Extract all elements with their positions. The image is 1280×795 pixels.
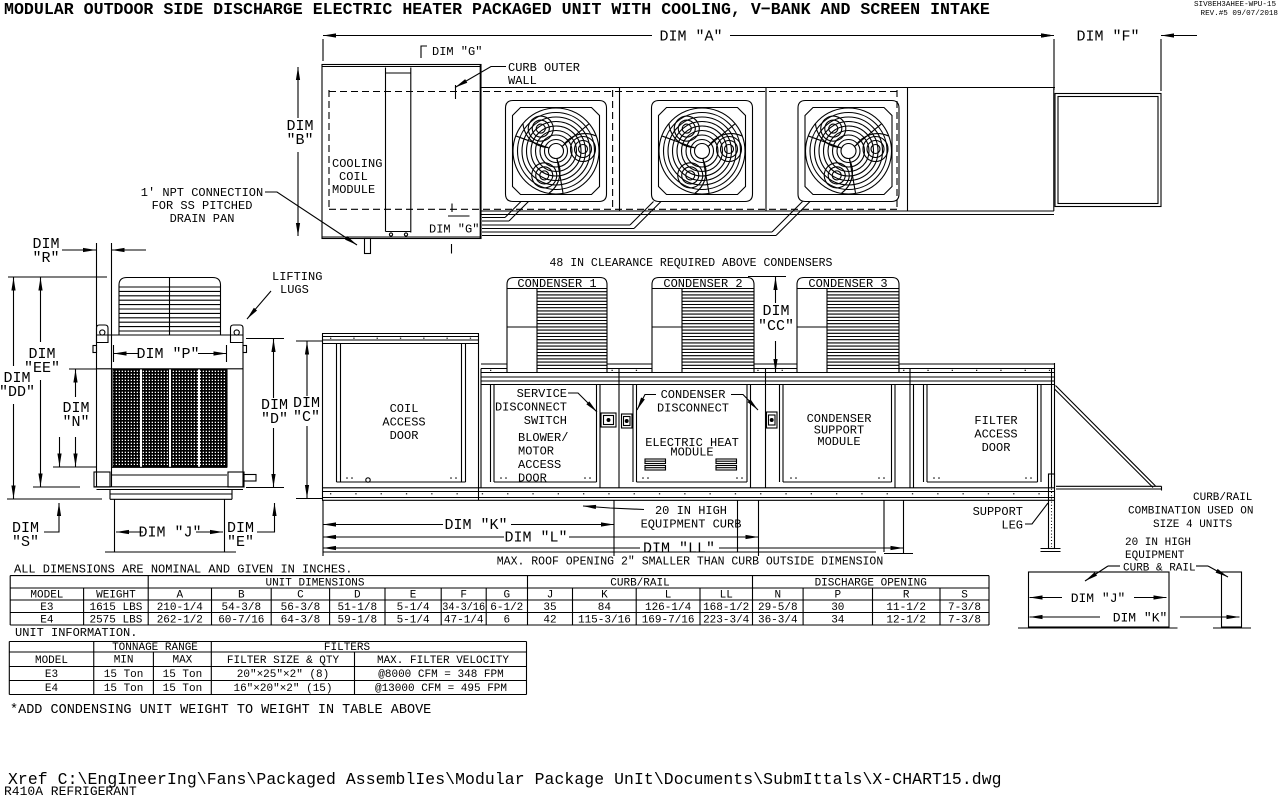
svg-text:169-7/16: 169-7/16 [642, 615, 695, 627]
svg-text:DOOR: DOOR [390, 429, 419, 443]
svg-text:DIM ″P″: DIM ″P″ [136, 346, 199, 363]
svg-text:L: L [665, 590, 672, 602]
svg-text:223-3/4: 223-3/4 [703, 615, 750, 627]
svg-text:15 Ton: 15 Ton [163, 669, 203, 681]
svg-text:CONDENSER: CONDENSER [661, 388, 726, 402]
svg-text:2575 LBS: 2575 LBS [89, 615, 142, 627]
svg-text:47-1/4: 47-1/4 [444, 615, 484, 627]
svg-text:COOLING: COOLING [332, 157, 382, 171]
svg-text:UNIT INFORMATION.: UNIT INFORMATION. [15, 626, 137, 640]
svg-text:DIM ″A″: DIM ″A″ [659, 29, 722, 46]
svg-text:CURB/RAIL: CURB/RAIL [610, 577, 669, 589]
svg-text:DOOR: DOOR [518, 472, 547, 486]
svg-text:E3: E3 [40, 602, 53, 614]
svg-text:51-1/8: 51-1/8 [337, 602, 377, 614]
svg-text:1′ NPT CONNECTION: 1′ NPT CONNECTION [141, 186, 263, 200]
svg-text:ACCESS: ACCESS [382, 416, 425, 430]
svg-text:C: C [297, 590, 304, 602]
svg-text:MAX. FILTER VELOCITY: MAX. FILTER VELOCITY [377, 655, 509, 667]
svg-text:@8000 CFM = 348 FPM: @8000 CFM = 348 FPM [378, 669, 503, 681]
svg-text:LL: LL [720, 590, 733, 602]
svg-text:MAX: MAX [172, 655, 192, 667]
svg-text:DIM ″J″: DIM ″J″ [1071, 591, 1126, 606]
svg-text:N: N [774, 590, 781, 602]
svg-text:DIM ″L″: DIM ″L″ [504, 530, 567, 547]
svg-text:54-3/8: 54-3/8 [221, 602, 261, 614]
svg-text:210-1/4: 210-1/4 [157, 602, 204, 614]
svg-text:UNIT DIMENSIONS: UNIT DIMENSIONS [265, 577, 364, 589]
svg-text:20″×25″×2″ (8): 20″×25″×2″ (8) [237, 669, 329, 681]
svg-text:F: F [460, 590, 467, 602]
svg-text:DIM ″F″: DIM ″F″ [1076, 29, 1139, 46]
svg-text:LUGS: LUGS [280, 283, 309, 297]
svg-text:MODULE: MODULE [332, 183, 375, 197]
svg-text:1615 LBS: 1615 LBS [89, 602, 142, 614]
svg-text:TONNAGE RANGE: TONNAGE RANGE [112, 642, 198, 654]
svg-text:MODULAR OUTDOOR SIDE DISCHARGE: MODULAR OUTDOOR SIDE DISCHARGE ELECTRIC … [4, 0, 990, 19]
svg-text:Xref C:\EngIneerIng\Fans\Packa: Xref C:\EngIneerIng\Fans\Packaged Assemb… [8, 770, 1002, 789]
svg-text:SUPPORT: SUPPORT [973, 505, 1023, 519]
svg-text:MODEL: MODEL [35, 655, 68, 667]
svg-text:6: 6 [503, 615, 510, 627]
svg-text:ACCESS: ACCESS [518, 458, 561, 472]
svg-text:″R″: ″R″ [32, 250, 59, 267]
svg-text:SIV8EH3AHEE-WPU-15: SIV8EH3AHEE-WPU-15 [1194, 1, 1276, 9]
svg-text:COIL: COIL [339, 170, 368, 184]
svg-text:D: D [354, 590, 361, 602]
svg-text:15 Ton: 15 Ton [104, 669, 144, 681]
svg-text:5-1/4: 5-1/4 [397, 615, 430, 627]
svg-text:SERVICE: SERVICE [517, 387, 567, 401]
svg-text:FILTER: FILTER [974, 414, 1017, 428]
svg-text:20 IN HIGH: 20 IN HIGH [1125, 537, 1191, 549]
svg-text:R410A REFRIGERANT: R410A REFRIGERANT [4, 784, 137, 795]
svg-text:@13000 CFM = 495 FPM: @13000 CFM = 495 FPM [375, 683, 507, 695]
svg-text:DISCONNECT: DISCONNECT [495, 401, 567, 415]
svg-text:34-3/16: 34-3/16 [442, 602, 485, 614]
svg-text:″S″: ″S″ [12, 534, 39, 551]
svg-text:6-1/2: 6-1/2 [490, 602, 523, 614]
svg-text:7-3/8: 7-3/8 [948, 615, 981, 627]
svg-text:E3: E3 [45, 669, 58, 681]
svg-text:CURB OUTER: CURB OUTER [508, 61, 580, 75]
svg-text:E4: E4 [40, 615, 54, 627]
svg-text:BLOWER/: BLOWER/ [518, 431, 568, 445]
svg-text:DIM ″K″: DIM ″K″ [444, 517, 507, 534]
svg-text:36-3/4: 36-3/4 [758, 615, 798, 627]
svg-text:S: S [961, 590, 968, 602]
svg-text:126-1/4: 126-1/4 [645, 602, 692, 614]
svg-text:12-1/2: 12-1/2 [886, 615, 926, 627]
svg-text:115-3/16: 115-3/16 [578, 615, 631, 627]
svg-text:″D″: ″D″ [261, 411, 288, 428]
svg-text:REV.#5 09/07/2018: REV.#5 09/07/2018 [1201, 10, 1279, 18]
svg-text:ALL DIMENSIONS ARE NOMINAL AND: ALL DIMENSIONS ARE NOMINAL AND GIVEN IN … [14, 563, 352, 577]
svg-text:15 Ton: 15 Ton [163, 683, 203, 695]
svg-text:SWITCH: SWITCH [524, 414, 567, 428]
svg-text:MODULE: MODULE [817, 435, 860, 449]
svg-text:48 IN CLEARANCE REQUIRED ABOVE: 48 IN CLEARANCE REQUIRED ABOVE CONDENSER… [550, 257, 833, 270]
svg-text:″DD″: ″DD″ [0, 384, 35, 401]
svg-text:ACCESS: ACCESS [974, 428, 1017, 442]
svg-text:MOTOR: MOTOR [518, 445, 554, 459]
svg-text:″C″: ″C″ [293, 409, 320, 426]
svg-text:G: G [503, 590, 510, 602]
svg-text:CURB & RAIL: CURB & RAIL [1123, 563, 1196, 575]
svg-text:64-3/8: 64-3/8 [281, 615, 321, 627]
svg-text:5-1/4: 5-1/4 [397, 602, 430, 614]
svg-text:DISCONNECT: DISCONNECT [657, 402, 729, 416]
svg-text:59-1/8: 59-1/8 [337, 615, 377, 627]
svg-text:MODULE: MODULE [670, 446, 713, 460]
svg-text:WALL: WALL [508, 74, 537, 88]
svg-text:SIZE 4 UNITS: SIZE 4 UNITS [1153, 519, 1233, 531]
svg-text:E4: E4 [45, 683, 59, 695]
svg-text:E: E [410, 590, 417, 602]
svg-text:EQUIPMENT: EQUIPMENT [1125, 550, 1185, 562]
svg-text:FILTER SIZE & QTY: FILTER SIZE & QTY [227, 655, 340, 667]
svg-text:DOOR: DOOR [982, 441, 1011, 455]
svg-text:EQUIPMENT CURB: EQUIPMENT CURB [641, 518, 742, 532]
svg-text:WEIGHT: WEIGHT [96, 590, 136, 602]
svg-text:29-5/8: 29-5/8 [758, 602, 798, 614]
svg-text:56-3/8: 56-3/8 [281, 602, 321, 614]
svg-text:DIM ″K″: DIM ″K″ [1113, 611, 1168, 626]
svg-text:″CC″: ″CC″ [758, 318, 794, 335]
svg-text:P: P [834, 590, 841, 602]
svg-text:LIFTING: LIFTING [272, 270, 322, 284]
svg-text:16″×20″×2″ (15): 16″×20″×2″ (15) [233, 683, 332, 695]
svg-text:″N″: ″N″ [62, 414, 89, 431]
svg-text:J: J [547, 590, 554, 602]
svg-text:11-1/2: 11-1/2 [886, 602, 926, 614]
svg-text:A: A [176, 590, 183, 602]
svg-text:″EE″: ″EE″ [24, 360, 60, 377]
svg-text:*ADD CONDENSING UNIT WEIGHT TO: *ADD CONDENSING UNIT WEIGHT TO WEIGHT IN… [10, 703, 431, 718]
svg-text:15 Ton: 15 Ton [104, 683, 144, 695]
svg-text:FILTERS: FILTERS [324, 642, 371, 654]
svg-text:20 IN HIGH: 20 IN HIGH [655, 504, 727, 518]
svg-text:DIM ″G″: DIM ″G″ [429, 223, 479, 237]
svg-text:MAX. ROOF OPENING 2″ SMALLER T: MAX. ROOF OPENING 2″ SMALLER THAN CURB O… [497, 556, 883, 569]
svg-text:84: 84 [598, 602, 612, 614]
svg-text:COIL: COIL [390, 402, 419, 416]
svg-text:168-1/2: 168-1/2 [703, 602, 749, 614]
svg-text:30: 30 [831, 602, 844, 614]
svg-text:262-1/2: 262-1/2 [157, 615, 203, 627]
svg-text:DRAIN PAN: DRAIN PAN [170, 212, 235, 226]
svg-text:MIN: MIN [114, 655, 134, 667]
svg-text:60-7/16: 60-7/16 [218, 615, 264, 627]
svg-text:FOR SS PITCHED: FOR SS PITCHED [152, 199, 253, 213]
svg-text:35: 35 [543, 602, 556, 614]
svg-text:COMBINATION USED ON: COMBINATION USED ON [1128, 506, 1253, 518]
svg-text:DIM ″J″: DIM ″J″ [138, 525, 201, 542]
svg-text:LEG: LEG [1001, 519, 1023, 533]
svg-text:B: B [238, 590, 245, 602]
svg-text:″B″: ″B″ [286, 132, 313, 149]
svg-text:K: K [601, 590, 608, 602]
svg-text:CURB/RAIL: CURB/RAIL [1193, 492, 1252, 504]
svg-text:MODEL: MODEL [30, 590, 63, 602]
svg-text:42: 42 [543, 615, 556, 627]
svg-text:34: 34 [831, 615, 845, 627]
svg-text:R: R [903, 590, 910, 602]
svg-text:7-3/8: 7-3/8 [948, 602, 981, 614]
svg-text:DIM ″G″: DIM ″G″ [432, 45, 482, 59]
svg-text:DISCHARGE OPENING: DISCHARGE OPENING [815, 577, 927, 589]
svg-text:″E″: ″E″ [227, 534, 254, 551]
